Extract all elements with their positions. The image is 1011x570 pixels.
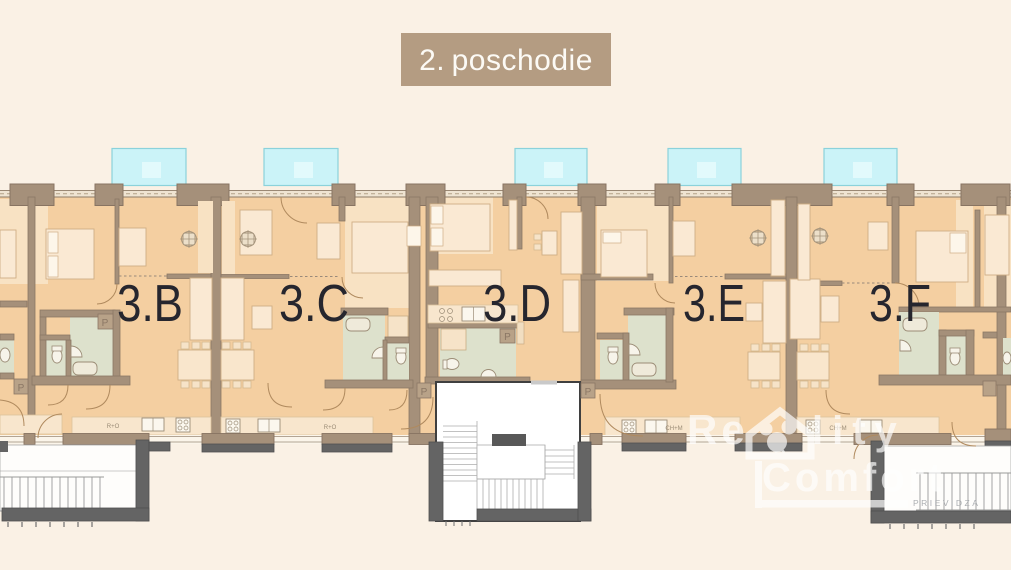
svg-text:3.F: 3.F bbox=[869, 275, 931, 333]
svg-text:3.B: 3.B bbox=[117, 275, 183, 333]
svg-text:3.D: 3.D bbox=[483, 275, 551, 333]
svg-text:Comfort: Comfort bbox=[762, 456, 946, 500]
svg-text:lity: lity bbox=[812, 409, 906, 453]
svg-text:CH+M: CH+M bbox=[665, 426, 682, 432]
svg-text:P: P bbox=[504, 332, 511, 343]
svg-text:R+O: R+O bbox=[107, 424, 120, 430]
svg-text:3.E: 3.E bbox=[683, 275, 745, 333]
svg-text:Re: Re bbox=[687, 406, 749, 453]
svg-text:2. poschodie: 2. poschodie bbox=[419, 44, 593, 77]
svg-text:P: P bbox=[421, 387, 428, 398]
svg-text:P: P bbox=[18, 383, 25, 394]
svg-text:PRIEVIDZA: PRIEVIDZA bbox=[913, 498, 980, 508]
svg-text:R+O: R+O bbox=[324, 425, 337, 431]
svg-text:P: P bbox=[102, 318, 109, 329]
svg-text:P: P bbox=[585, 387, 592, 398]
svg-text:3.C: 3.C bbox=[279, 275, 349, 333]
